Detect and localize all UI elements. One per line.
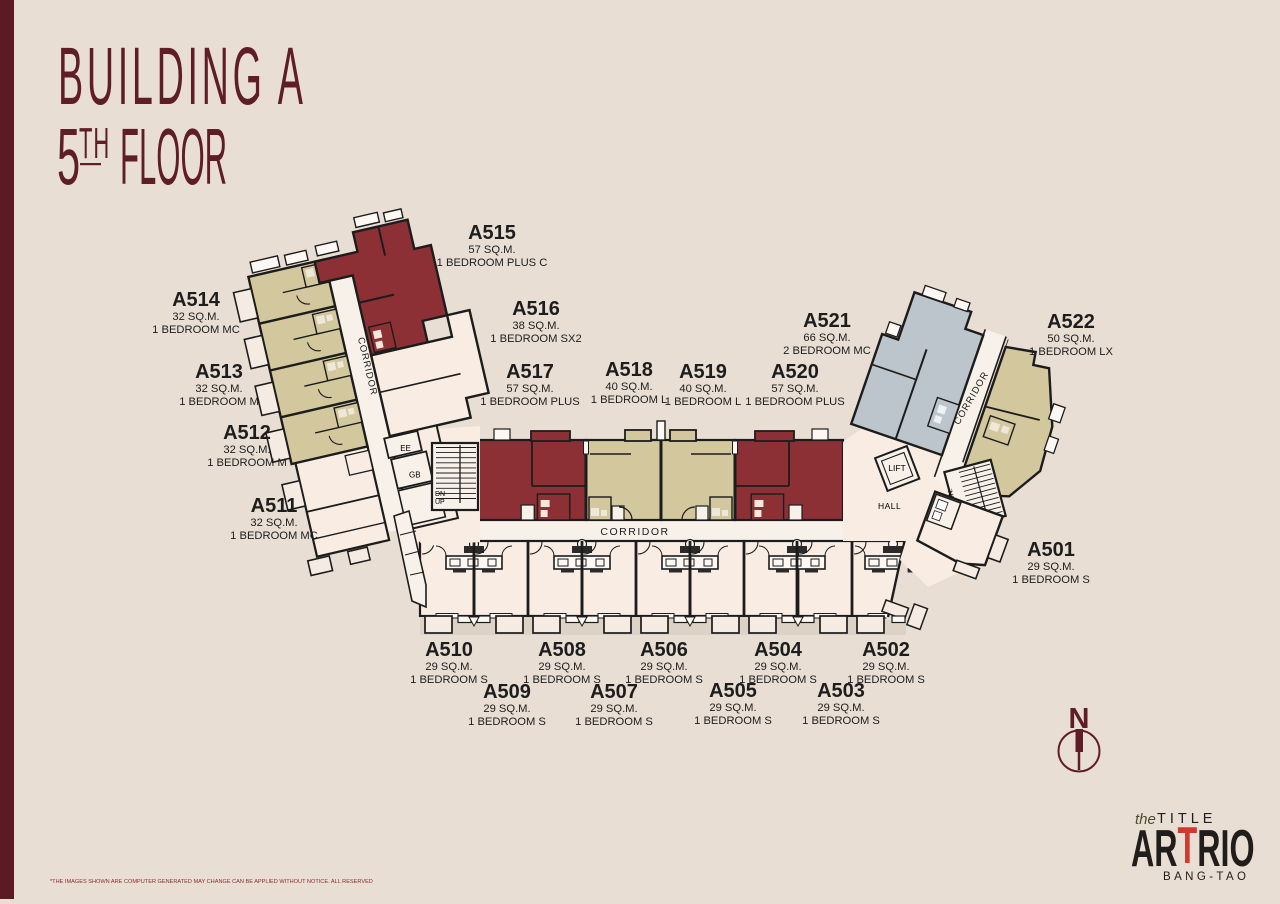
svg-text:1 BEDROOM S: 1 BEDROOM S — [694, 715, 772, 727]
svg-text:29 SQ.M.: 29 SQ.M. — [862, 661, 909, 673]
svg-text:1 BEDROOM M: 1 BEDROOM M — [207, 457, 287, 469]
svg-text:A516: A516 — [512, 298, 560, 320]
svg-text:GB: GB — [409, 471, 421, 480]
svg-text:A515: A515 — [468, 222, 516, 244]
svg-text:A518: A518 — [605, 359, 653, 381]
svg-text:DN: DN — [435, 491, 445, 498]
svg-text:1 BEDROOM PLUS C: 1 BEDROOM PLUS C — [437, 257, 548, 269]
svg-text:29 SQ.M.: 29 SQ.M. — [538, 661, 585, 673]
svg-text:N: N — [1069, 703, 1090, 735]
svg-text:ARTRIO: ARTRIO — [1131, 817, 1255, 878]
svg-text:A522: A522 — [1047, 311, 1095, 333]
svg-text:1 BEDROOM L: 1 BEDROOM L — [665, 396, 741, 408]
svg-text:EE: EE — [400, 444, 411, 453]
svg-text:CORRIDOR: CORRIDOR — [600, 526, 669, 538]
svg-text:A517: A517 — [506, 361, 554, 383]
svg-text:29 SQ.M.: 29 SQ.M. — [425, 661, 472, 673]
svg-text:A503: A503 — [817, 680, 865, 702]
svg-text:1 BEDROOM MC: 1 BEDROOM MC — [152, 324, 240, 336]
svg-text:A506: A506 — [640, 639, 688, 661]
svg-text:29 SQ.M.: 29 SQ.M. — [590, 703, 637, 715]
svg-text:A509: A509 — [483, 681, 531, 703]
svg-text:A505: A505 — [709, 680, 757, 702]
svg-text:A501: A501 — [1027, 539, 1075, 561]
svg-text:1 BEDROOM MC: 1 BEDROOM MC — [230, 530, 318, 542]
svg-text:1 BEDROOM SX2: 1 BEDROOM SX2 — [490, 333, 581, 345]
svg-text:A511: A511 — [251, 495, 298, 517]
svg-text:A513: A513 — [195, 361, 243, 383]
svg-text:FLOOR: FLOOR — [120, 111, 227, 201]
svg-text:A514: A514 — [172, 289, 221, 311]
svg-text:5: 5 — [57, 111, 80, 201]
svg-text:A504: A504 — [754, 639, 803, 661]
svg-text:32 SQ.M.: 32 SQ.M. — [250, 517, 297, 529]
svg-text:29 SQ.M.: 29 SQ.M. — [1027, 561, 1074, 573]
svg-text:1 BEDROOM PLUS: 1 BEDROOM PLUS — [745, 396, 844, 408]
svg-text:29 SQ.M.: 29 SQ.M. — [640, 661, 687, 673]
svg-text:A508: A508 — [538, 639, 586, 661]
svg-text:A510: A510 — [425, 639, 473, 661]
svg-text:LIFT: LIFT — [888, 463, 905, 473]
svg-text:A502: A502 — [862, 639, 910, 661]
svg-text:57 SQ.M.: 57 SQ.M. — [506, 383, 553, 395]
svg-text:BANG-TAO: BANG-TAO — [1163, 871, 1249, 883]
svg-text:1 BEDROOM PLUS: 1 BEDROOM PLUS — [480, 396, 579, 408]
svg-text:32 SQ.M.: 32 SQ.M. — [172, 311, 219, 323]
svg-text:50 SQ.M.: 50 SQ.M. — [1047, 333, 1094, 345]
svg-text:A512: A512 — [223, 422, 271, 444]
svg-text:66 SQ.M.: 66 SQ.M. — [803, 332, 850, 344]
svg-text:1 BEDROOM L: 1 BEDROOM L — [591, 394, 667, 406]
svg-text:1 BEDROOM LX: 1 BEDROOM LX — [1029, 346, 1113, 358]
svg-text:A521: A521 — [803, 310, 851, 332]
svg-text:29 SQ.M.: 29 SQ.M. — [754, 661, 801, 673]
svg-text:A520: A520 — [771, 361, 819, 383]
svg-text:*THE IMAGES SHOWN ARE COMPUTER: *THE IMAGES SHOWN ARE COMPUTER GENERATED… — [50, 879, 373, 885]
svg-text:32 SQ.M.: 32 SQ.M. — [195, 383, 242, 395]
svg-text:HALL: HALL — [878, 501, 901, 511]
svg-text:1 BEDROOM M: 1 BEDROOM M — [179, 396, 259, 408]
svg-text:1 BEDROOM S: 1 BEDROOM S — [410, 674, 488, 686]
svg-text:1 BEDROOM S: 1 BEDROOM S — [802, 715, 880, 727]
svg-text:2 BEDROOM MC: 2 BEDROOM MC — [783, 345, 871, 357]
svg-text:TH: TH — [79, 120, 110, 168]
svg-text:32 SQ.M.: 32 SQ.M. — [223, 444, 270, 456]
svg-text:1 BEDROOM S: 1 BEDROOM S — [1012, 574, 1090, 586]
svg-text:29 SQ.M.: 29 SQ.M. — [483, 703, 530, 715]
svg-text:A519: A519 — [679, 361, 727, 383]
svg-text:40 SQ.M.: 40 SQ.M. — [679, 383, 726, 395]
svg-text:1 BEDROOM S: 1 BEDROOM S — [468, 716, 546, 728]
svg-text:A507: A507 — [590, 681, 638, 703]
svg-text:40 SQ.M.: 40 SQ.M. — [605, 381, 652, 393]
svg-text:BUILDING A: BUILDING A — [58, 30, 307, 122]
svg-text:57 SQ.M.: 57 SQ.M. — [771, 383, 818, 395]
svg-text:UP: UP — [435, 499, 445, 506]
svg-text:1 BEDROOM S: 1 BEDROOM S — [575, 716, 653, 728]
svg-text:29 SQ.M.: 29 SQ.M. — [817, 702, 864, 714]
svg-text:29 SQ.M.: 29 SQ.M. — [709, 702, 756, 714]
svg-text:57 SQ.M.: 57 SQ.M. — [468, 244, 515, 256]
svg-text:38 SQ.M.: 38 SQ.M. — [512, 320, 559, 332]
